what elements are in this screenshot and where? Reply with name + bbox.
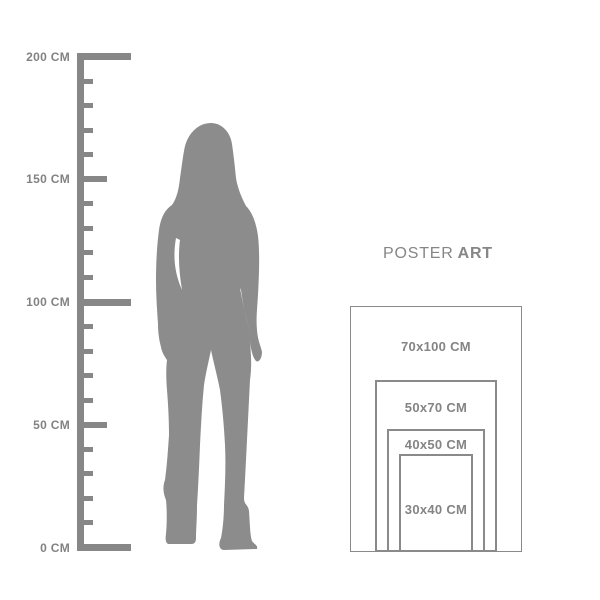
- woman-silhouette-shape: [156, 123, 262, 550]
- ruler-tick-40cm: [77, 447, 93, 452]
- ruler-label-0cm: 0 CM: [0, 540, 70, 556]
- size-label-40x50: 40x50 CM: [366, 437, 506, 453]
- ruler-tick-60cm: [77, 398, 93, 403]
- ruler-tick-190cm: [77, 79, 93, 84]
- ruler-label-100cm: 100 CM: [0, 294, 70, 310]
- ruler-label-50cm: 50 CM: [0, 417, 70, 433]
- ruler-tick-150cm: [77, 176, 107, 182]
- ruler-label-150cm: 150 CM: [0, 171, 70, 187]
- woman-silhouette: [140, 110, 300, 560]
- ruler-tick-20cm: [77, 496, 93, 501]
- ruler-tick-180cm: [77, 103, 93, 108]
- ruler-tick-100cm: [77, 299, 131, 306]
- ruler-tick-200cm: [77, 53, 131, 60]
- ruler-tick-120cm: [77, 250, 93, 255]
- ruler-tick-160cm: [77, 152, 93, 157]
- ruler-tick-90cm: [77, 324, 93, 329]
- ruler-tick-10cm: [77, 520, 93, 525]
- ruler-tick-70cm: [77, 373, 93, 378]
- ruler-tick-110cm: [77, 275, 93, 280]
- size-label-30x40: 30x40 CM: [366, 502, 506, 518]
- ruler-tick-170cm: [77, 128, 93, 133]
- poster-title: POSTERART: [383, 245, 493, 263]
- ruler-tick-140cm: [77, 201, 93, 206]
- size-label-70x100: 70x100 CM: [366, 339, 506, 355]
- ruler-tick-30cm: [77, 471, 93, 476]
- ruler-label-200cm: 200 CM: [0, 49, 70, 65]
- ruler-tick-0cm: [77, 544, 131, 551]
- ruler-tick-80cm: [77, 349, 93, 354]
- poster-size-guide-diagram: 200 CM150 CM100 CM50 CM0 CM POSTERART 70…: [0, 0, 600, 600]
- poster-title-regular: POSTER: [383, 245, 454, 262]
- ruler-tick-130cm: [77, 226, 93, 231]
- ruler-tick-50cm: [77, 422, 107, 428]
- size-label-50x70: 50x70 CM: [366, 400, 506, 416]
- poster-title-bold: ART: [458, 245, 493, 262]
